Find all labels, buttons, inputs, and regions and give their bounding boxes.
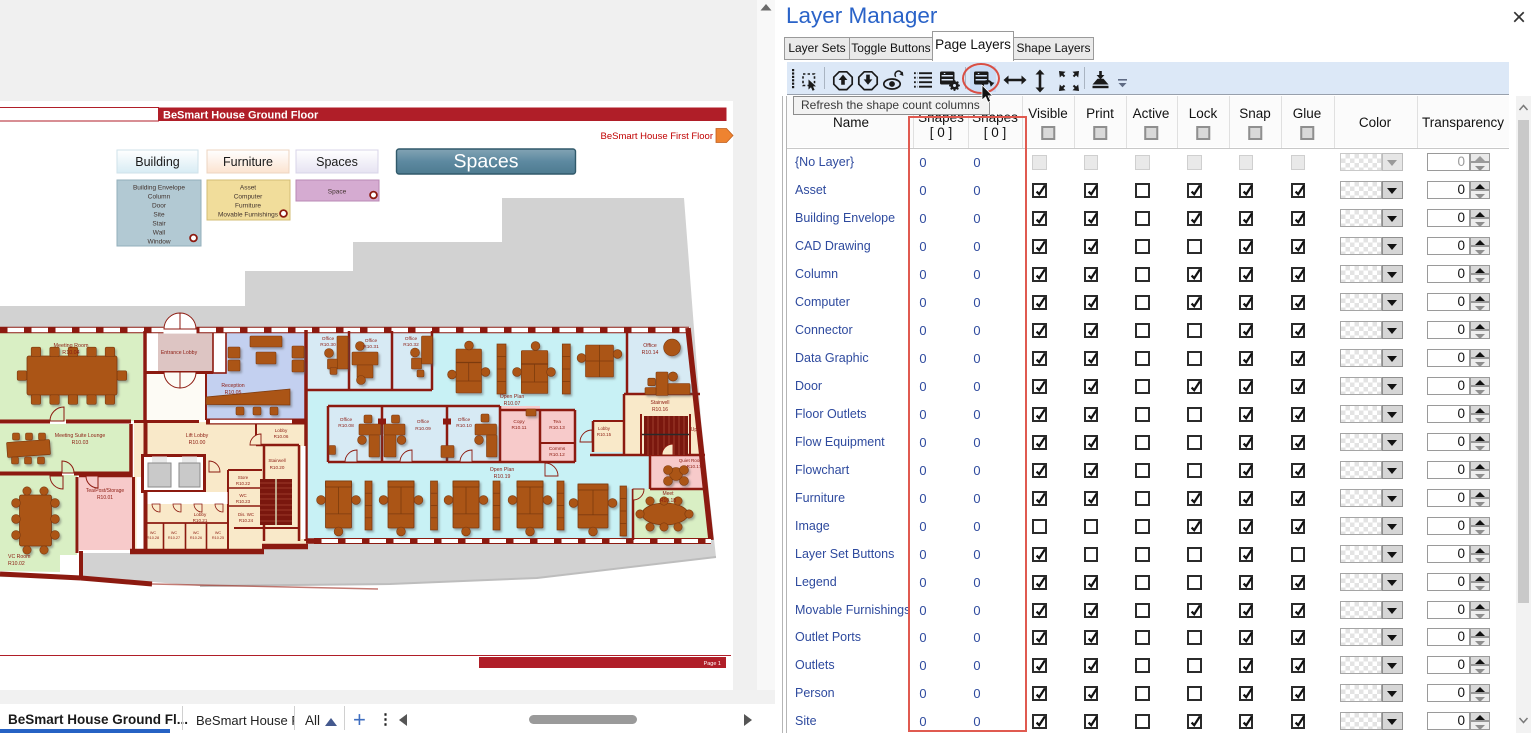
svg-text:Tea: Tea — [553, 419, 561, 425]
svg-text:Lobby: Lobby — [194, 512, 207, 517]
svg-text:R10.21: R10.21 — [193, 518, 208, 523]
svg-text:Space: Space — [328, 189, 347, 196]
svg-text:R10.10: R10.10 — [456, 423, 472, 429]
svg-text:Comms: Comms — [549, 446, 566, 452]
svg-text:R10.08: R10.08 — [338, 423, 354, 429]
svg-text:R10.27: R10.27 — [168, 536, 180, 540]
svg-text:R10.17: R10.17 — [687, 464, 702, 469]
svg-text:R10.28: R10.28 — [147, 536, 159, 540]
svg-text:R10.16: R10.16 — [652, 407, 668, 413]
svg-text:Wall: Wall — [153, 230, 166, 237]
svg-text:R10.06: R10.06 — [274, 434, 289, 439]
svg-text:Stairwell: Stairwell — [268, 458, 285, 463]
svg-text:Meet: Meet — [662, 491, 674, 497]
svg-text:R10.07: R10.07 — [504, 401, 521, 407]
svg-text:R10.03: R10.03 — [72, 440, 89, 446]
svg-text:Building: Building — [135, 155, 180, 169]
svg-text:R10.18: R10.18 — [660, 498, 676, 504]
svg-text:Office: Office — [458, 417, 471, 423]
svg-text:Page 1: Page 1 — [704, 661, 721, 667]
svg-text:Open Plan: Open Plan — [490, 467, 515, 473]
svg-text:Asset: Asset — [240, 185, 256, 192]
svg-text:R10.05: R10.05 — [225, 390, 242, 396]
svg-text:R10.09: R10.09 — [415, 426, 431, 432]
svg-text:Copy: Copy — [513, 419, 525, 425]
svg-text:Office: Office — [643, 343, 657, 349]
svg-text:R10.12: R10.12 — [549, 452, 565, 458]
svg-text:Stairwell: Stairwell — [651, 400, 670, 406]
svg-text:R10.32: R10.32 — [403, 342, 419, 348]
svg-text:Office: Office — [322, 336, 335, 342]
svg-text:Meeting Suite Lounge: Meeting Suite Lounge — [55, 433, 106, 439]
svg-text:Column: Column — [148, 194, 171, 201]
svg-text:R10.31: R10.31 — [363, 344, 379, 350]
svg-text:Entrance Lobby: Entrance Lobby — [161, 350, 198, 356]
svg-text:Open Plan: Open Plan — [500, 394, 525, 400]
svg-text:Dis. WC: Dis. WC — [238, 512, 254, 517]
svg-text:Reception: Reception — [221, 383, 244, 389]
svg-text:WC: WC — [193, 531, 200, 535]
svg-text:R10.19: R10.19 — [494, 474, 511, 480]
svg-text:R10.30: R10.30 — [320, 342, 336, 348]
svg-text:R10.24: R10.24 — [239, 518, 254, 523]
svg-text:Office: Office — [340, 417, 353, 423]
svg-text:R10.01: R10.01 — [97, 495, 113, 501]
svg-text:Office: Office — [365, 338, 378, 344]
svg-text:Office: Office — [405, 336, 418, 342]
svg-text:WC: WC — [150, 531, 157, 535]
svg-text:R10.13: R10.13 — [549, 425, 565, 431]
svg-text:R10.14: R10.14 — [642, 350, 659, 356]
svg-text:R10.20: R10.20 — [270, 465, 285, 470]
svg-text:Lobby: Lobby — [275, 428, 288, 433]
svg-text:Office: Office — [417, 419, 430, 425]
svg-text:WC: WC — [171, 531, 178, 535]
svg-text:Quiet Room: Quiet Room — [679, 458, 704, 463]
svg-text:Meeting Room: Meeting Room — [53, 343, 89, 349]
svg-text:Door: Door — [152, 203, 167, 210]
svg-text:Spaces: Spaces — [453, 151, 518, 173]
svg-text:Lobby: Lobby — [598, 426, 611, 431]
svg-text:R10.23: R10.23 — [236, 499, 251, 504]
svg-text:R10.22: R10.22 — [236, 481, 251, 486]
svg-text:VC Room: VC Room — [8, 554, 31, 560]
svg-text:BeSmart House First Floor: BeSmart House First Floor — [601, 131, 713, 142]
svg-text:WC: WC — [239, 493, 246, 498]
svg-text:WC: WC — [215, 531, 222, 535]
svg-text:Store: Store — [238, 475, 249, 480]
svg-text:Window: Window — [147, 239, 170, 246]
svg-text:R10.04: R10.04 — [62, 350, 79, 356]
svg-text:Building Envelope: Building Envelope — [133, 185, 185, 192]
svg-text:Spaces: Spaces — [316, 155, 358, 169]
svg-text:R10.26: R10.26 — [190, 536, 202, 540]
svg-text:R10.02: R10.02 — [8, 561, 25, 567]
svg-text:Furniture: Furniture — [235, 203, 261, 210]
svg-text:Computer: Computer — [234, 194, 263, 201]
svg-text:R10.11: R10.11 — [511, 425, 526, 431]
svg-text:Furniture: Furniture — [223, 155, 273, 169]
svg-text:Stair: Stair — [152, 221, 166, 228]
svg-text:Movable Furnishings: Movable Furnishings — [218, 212, 279, 219]
svg-text:BeSmart House Ground Floor: BeSmart House Ground Floor — [163, 109, 319, 121]
svg-text:Tea/Post/Storage: Tea/Post/Storage — [86, 488, 125, 494]
svg-text:Site: Site — [153, 212, 165, 219]
svg-text:Up: Up — [691, 427, 698, 433]
svg-text:R10.25: R10.25 — [212, 536, 224, 540]
svg-text:Lift Lobby: Lift Lobby — [186, 433, 209, 439]
svg-text:R10.00: R10.00 — [189, 440, 206, 446]
svg-text:R10.15: R10.15 — [597, 432, 612, 437]
